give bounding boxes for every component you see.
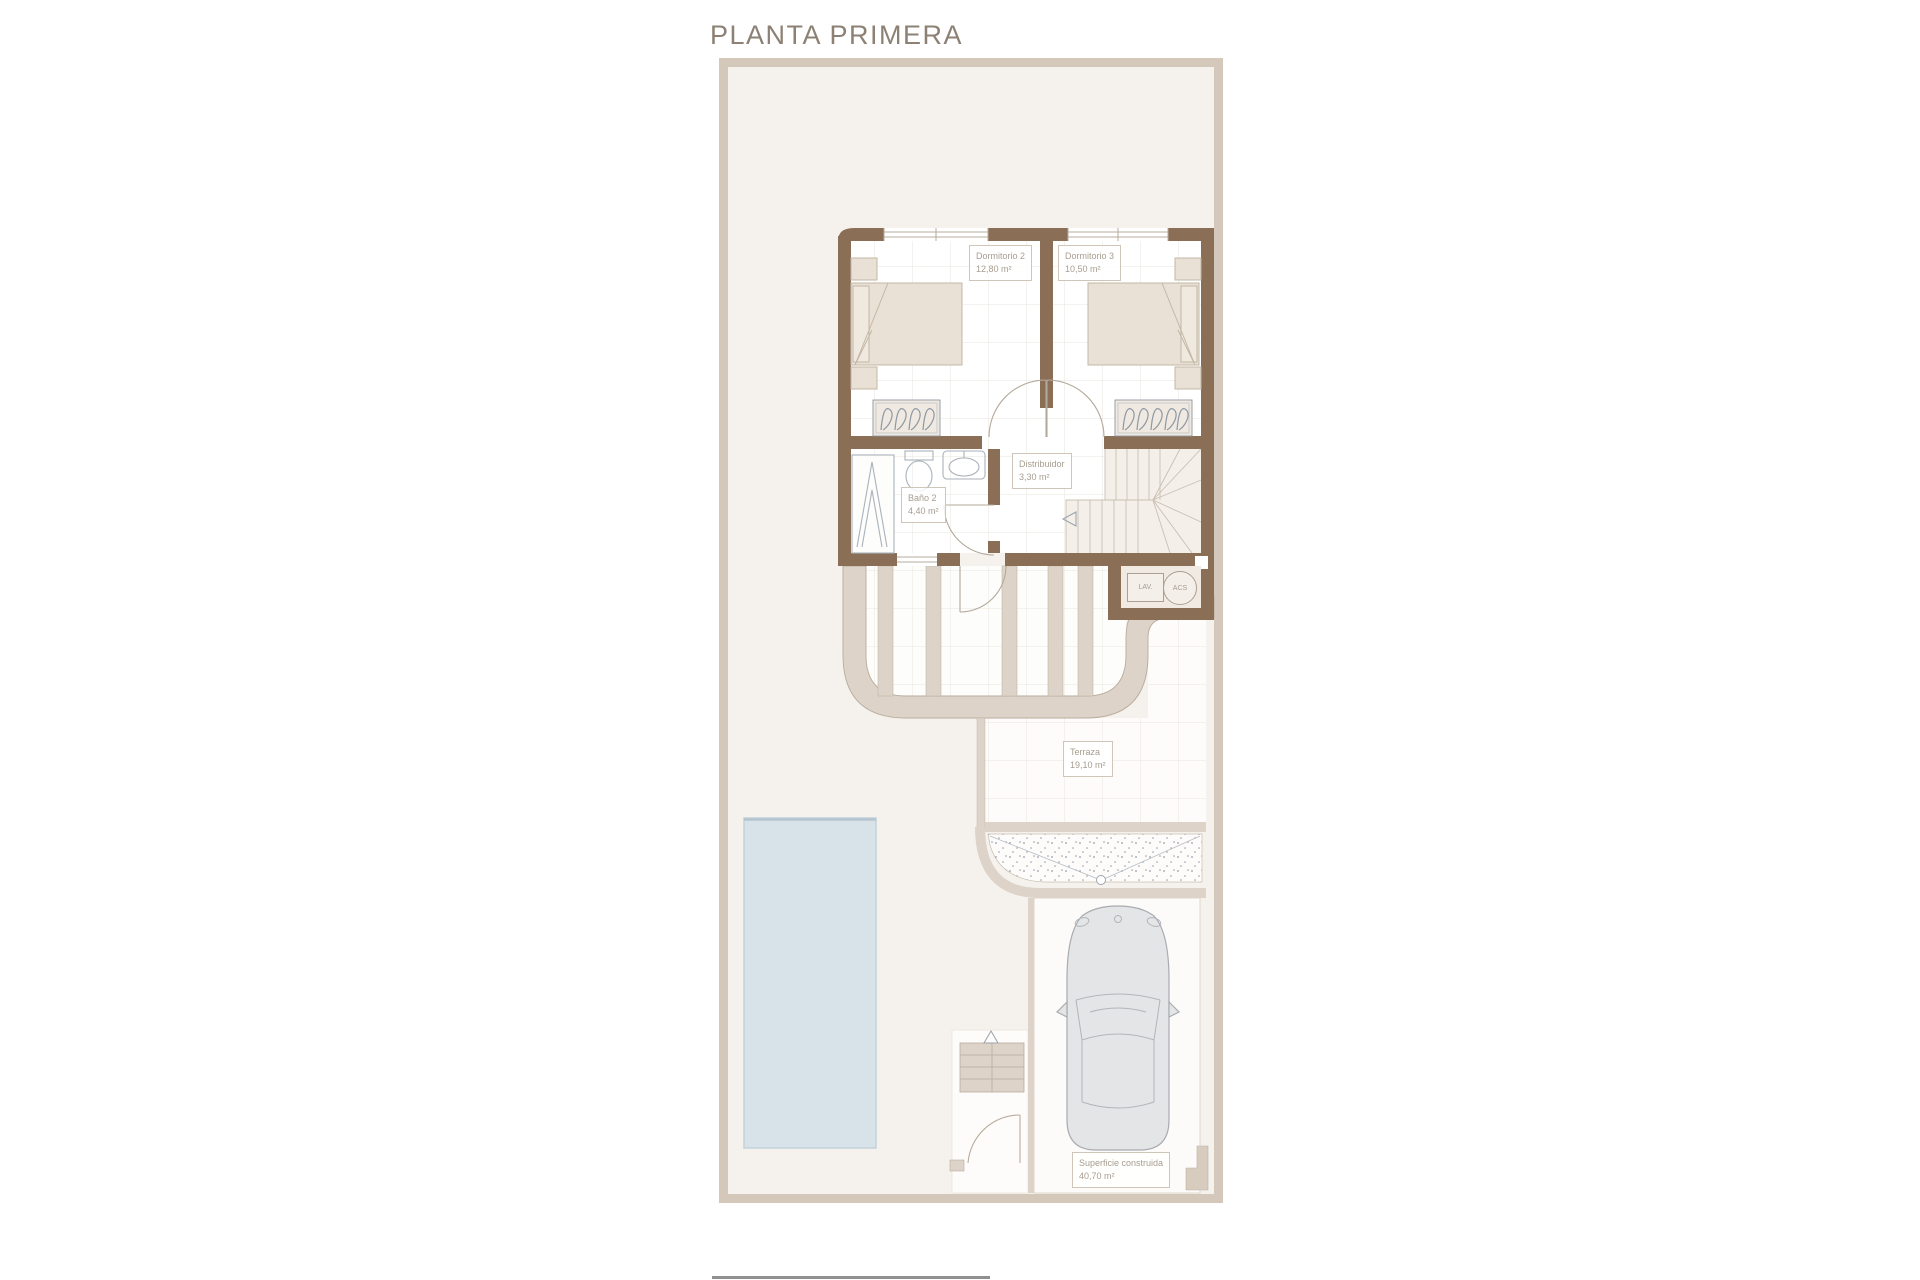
nightstand xyxy=(1175,367,1201,389)
label-acs: ACS xyxy=(1163,571,1197,605)
drain xyxy=(1097,876,1106,885)
car-top-view xyxy=(1057,906,1179,1150)
room-name: Dormitorio 2 xyxy=(976,250,1025,263)
room-name: Distribuidor xyxy=(1019,458,1065,471)
room-name: Dormitorio 3 xyxy=(1065,250,1114,263)
gate-post xyxy=(950,1160,964,1171)
room-area: 3,30 m² xyxy=(1019,471,1065,484)
wardrobe-dormitorio2 xyxy=(873,400,940,436)
label-superficie-construida: Superficie construida 40,70 m² xyxy=(1072,1152,1170,1188)
room-area: 10,50 m² xyxy=(1065,263,1114,276)
floor-plan-page: PLANTA PRIMERA xyxy=(0,0,1920,1280)
room-name: Terraza xyxy=(1070,746,1106,759)
room-name: Baño 2 xyxy=(908,492,939,505)
nightstand xyxy=(851,367,877,389)
next-plan-edge xyxy=(712,1276,990,1279)
nightstand xyxy=(1175,258,1201,280)
terrace-side-wall xyxy=(977,718,985,832)
label-lav: LAV. xyxy=(1127,573,1164,602)
pool xyxy=(744,818,876,1148)
floor-plan-drawing xyxy=(0,0,1920,1280)
entrance xyxy=(950,1030,1028,1193)
room-area: 40,70 m² xyxy=(1079,1170,1163,1183)
room-area: 12,80 m² xyxy=(976,263,1025,276)
window-dorm3 xyxy=(1068,228,1168,241)
room-name: Superficie construida xyxy=(1079,1157,1163,1170)
wardrobe-dormitorio3 xyxy=(1115,400,1192,436)
label-dormitorio3: Dormitorio 3 10,50 m² xyxy=(1058,245,1121,281)
label-bano2: Baño 2 4,40 m² xyxy=(901,487,946,523)
room-area: 4,40 m² xyxy=(908,505,939,518)
label-distribuidor: Distribuidor 3,30 m² xyxy=(1012,453,1072,489)
label-dormitorio2: Dormitorio 2 12,80 m² xyxy=(969,245,1032,281)
nightstand xyxy=(851,258,877,280)
label-terraza: Terraza 19,10 m² xyxy=(1063,741,1113,777)
room-area: 19,10 m² xyxy=(1070,759,1106,772)
window-bath xyxy=(897,553,937,566)
window-dorm2 xyxy=(884,228,988,241)
shower xyxy=(852,455,894,553)
